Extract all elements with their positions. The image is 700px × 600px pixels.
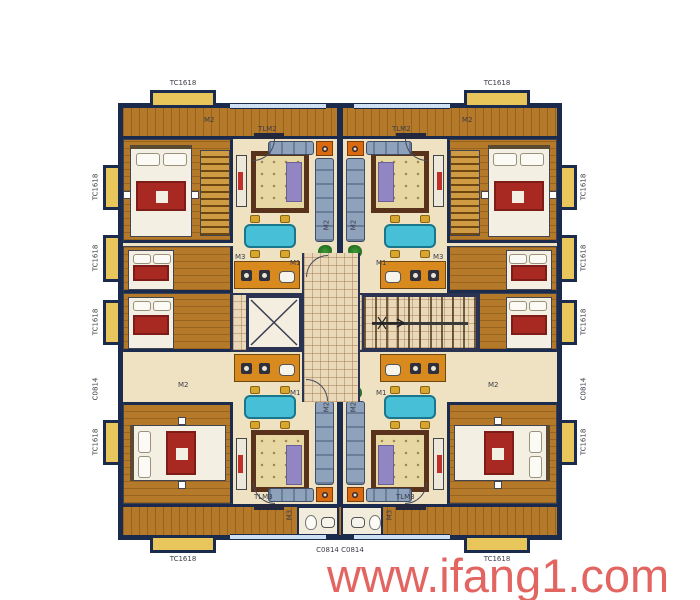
door-label-tlm2: TLM2 (258, 125, 277, 133)
kitchen-counter (380, 354, 446, 382)
door-label-m3: M3 (285, 510, 293, 521)
tv-cabinet (433, 438, 444, 490)
bed (130, 145, 192, 237)
kitchen-counter (380, 261, 446, 289)
wardrobe (200, 150, 230, 236)
bay-window (559, 165, 577, 210)
bay-window-label-bottom-left: TC1618 (150, 555, 216, 563)
bay-window (103, 300, 121, 345)
bedroom (123, 139, 233, 243)
door-label-tlm2: TLM2 (392, 125, 411, 133)
bedroom (447, 402, 557, 504)
door-label-m1: M1 (290, 259, 301, 267)
window (354, 534, 450, 540)
watermark: www.ifang1.com (327, 548, 669, 600)
dining-table (244, 395, 296, 419)
sofa (346, 401, 365, 485)
door-label-m2: M2 (178, 381, 189, 389)
bedroom (123, 402, 233, 504)
balcony-door (396, 133, 426, 139)
door-label-m2: M2 (204, 116, 215, 124)
staircase (362, 295, 478, 350)
rug (371, 151, 429, 213)
lamp-table (316, 487, 333, 502)
door-label-m1: M1 (376, 389, 387, 397)
balcony-door (254, 504, 284, 510)
bay-window-label-left: TC1618 (91, 245, 99, 272)
wardrobe (450, 150, 480, 236)
bedroom (123, 293, 233, 352)
elevator (246, 295, 302, 350)
lamp-table (347, 141, 364, 156)
door-label-m1: M1 (290, 389, 301, 397)
tv-cabinet (236, 155, 247, 207)
floorplan-canvas: TC1618 TC1618 TC1618 TC1618 TC1618 TC161… (0, 0, 700, 600)
bay-window-label-right: TC1618 (579, 429, 587, 456)
bed (130, 425, 226, 481)
door-label-m3: M3 (385, 510, 393, 521)
bay-window (559, 235, 577, 282)
tv-cabinet (236, 438, 247, 490)
bed (454, 425, 550, 481)
window (230, 103, 326, 109)
floor-plan: TC1618 TC1618 TC1618 TC1618 TC1618 TC161… (118, 103, 562, 540)
door-label-m2: M2 (488, 381, 499, 389)
door-label-m3: M3 (433, 253, 444, 261)
door-label-tlm3: TLM3 (396, 493, 415, 501)
bay-window-label-right: TC1618 (579, 174, 587, 201)
dining-table (244, 224, 296, 248)
small-window-label-right: C0814 (579, 378, 587, 401)
lamp-table (347, 487, 364, 502)
bay-window (103, 235, 121, 282)
bay-window-label-right: TC1618 (579, 245, 587, 272)
bay-window (150, 90, 216, 108)
small-window-label-left: C0814 (91, 378, 99, 401)
living-dining (346, 350, 447, 504)
living-dining (346, 139, 447, 293)
bedroom (447, 246, 557, 293)
kitchen-counter (234, 354, 300, 382)
bay-window-label-top-right: TC1618 (464, 79, 530, 87)
lamp-table (316, 141, 333, 156)
door-label-m2: M2 (322, 220, 330, 231)
dining-table (384, 395, 436, 419)
bay-window-label-left: TC1618 (91, 309, 99, 336)
bathroom (341, 506, 383, 536)
door-label-m2: M2 (349, 220, 357, 231)
door-label-m2: M2 (322, 402, 330, 413)
bedroom (123, 246, 233, 293)
bay-window (559, 300, 577, 345)
window (354, 103, 450, 109)
door-label-m2: M2 (462, 116, 473, 124)
door-label-m1: M1 (376, 259, 387, 267)
sofa (268, 141, 314, 155)
bay-window-label-top-left: TC1618 (150, 79, 216, 87)
door-label-tlm3: TLM3 (254, 493, 273, 501)
balcony-door (396, 504, 426, 510)
bay-window-label-right: TC1618 (579, 309, 587, 336)
bay-window (559, 420, 577, 465)
dining-table (384, 224, 436, 248)
bedroom (447, 139, 557, 243)
center-wall (337, 400, 343, 504)
bay-window-label-left: TC1618 (91, 429, 99, 456)
center-wall (337, 108, 343, 255)
bay-window (464, 90, 530, 108)
door-label-m2: M2 (349, 402, 357, 413)
tv-cabinet (433, 155, 444, 207)
bay-window (103, 165, 121, 210)
bay-window (150, 535, 216, 553)
bay-window (103, 420, 121, 465)
bed (488, 145, 550, 237)
balcony-door (254, 133, 284, 139)
window (230, 534, 326, 540)
rug (251, 151, 309, 213)
bathroom (297, 506, 339, 536)
sofa (315, 401, 334, 485)
bay-window-label-left: TC1618 (91, 174, 99, 201)
door-label-m3: M3 (235, 253, 246, 261)
